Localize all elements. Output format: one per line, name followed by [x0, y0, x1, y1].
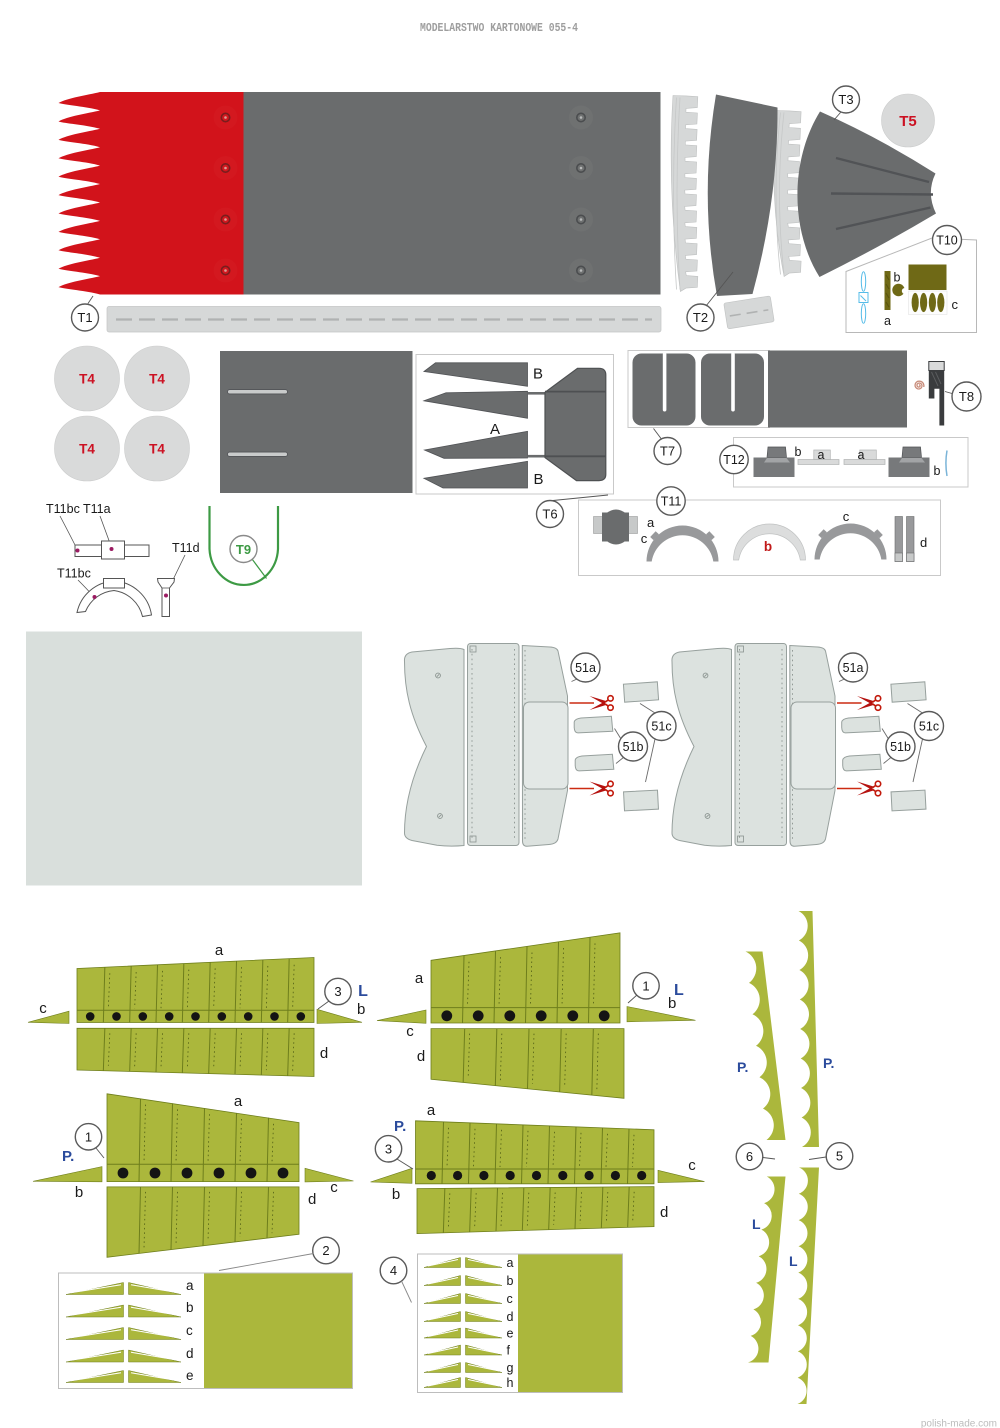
svg-text:b: b: [507, 1274, 514, 1288]
svg-text:B: B: [533, 366, 543, 383]
svg-text:b: b: [764, 539, 772, 554]
svg-text:A: A: [490, 421, 500, 438]
svg-text:c: c: [39, 1000, 47, 1017]
svg-text:L: L: [752, 1216, 761, 1232]
svg-text:a: a: [818, 448, 825, 462]
svg-text:T4: T4: [149, 372, 165, 387]
svg-text:c: c: [952, 297, 959, 312]
svg-text:3: 3: [334, 984, 341, 999]
svg-text:51c: 51c: [919, 720, 939, 734]
svg-text:f: f: [507, 1344, 511, 1358]
svg-text:polish-made.com: polish-made.com: [921, 1419, 997, 1428]
svg-text:a: a: [507, 1256, 514, 1270]
svg-text:T11: T11: [661, 495, 682, 509]
svg-text:3: 3: [385, 1142, 392, 1157]
svg-text:a: a: [186, 1278, 194, 1293]
svg-text:T7: T7: [660, 444, 675, 459]
svg-text:P.: P.: [737, 1059, 748, 1075]
svg-text:1: 1: [642, 979, 649, 994]
svg-text:a: a: [427, 1102, 436, 1119]
svg-text:5: 5: [836, 1149, 843, 1164]
svg-text:51b: 51b: [623, 740, 644, 754]
svg-text:b: b: [795, 445, 802, 459]
svg-text:c: c: [843, 509, 850, 524]
svg-text:d: d: [920, 535, 927, 550]
svg-text:P.: P.: [62, 1148, 74, 1165]
svg-text:T4: T4: [79, 442, 95, 457]
svg-text:MODELARSTWO KARTONOWE 055-4: MODELARSTWO KARTONOWE 055-4: [420, 22, 578, 35]
svg-text:T11bc: T11bc: [57, 567, 91, 581]
svg-text:c: c: [688, 1157, 696, 1174]
svg-text:51a: 51a: [575, 661, 596, 675]
svg-text:e: e: [186, 1368, 194, 1383]
svg-text:d: d: [660, 1204, 668, 1221]
svg-text:B: B: [533, 471, 543, 488]
svg-text:T5: T5: [899, 113, 917, 130]
svg-text:g: g: [507, 1361, 514, 1375]
svg-text:a: a: [858, 448, 865, 462]
svg-text:51c: 51c: [651, 720, 671, 734]
svg-text:51b: 51b: [890, 740, 911, 754]
svg-text:c: c: [641, 531, 648, 546]
svg-text:L: L: [358, 983, 368, 1000]
svg-text:d: d: [417, 1048, 425, 1065]
svg-text:T6: T6: [542, 507, 557, 522]
svg-text:T10: T10: [936, 234, 958, 248]
svg-text:T4: T4: [79, 372, 95, 387]
svg-text:d: d: [320, 1045, 328, 1062]
svg-text:T11d: T11d: [172, 541, 200, 555]
svg-text:T2: T2: [693, 310, 708, 325]
svg-text:a: a: [647, 515, 655, 530]
svg-text:L: L: [674, 982, 684, 999]
svg-text:b: b: [75, 1184, 83, 1201]
svg-text:b: b: [392, 1186, 400, 1203]
svg-text:h: h: [507, 1376, 514, 1390]
svg-text:T4: T4: [149, 442, 165, 457]
svg-text:T11bc: T11bc: [46, 502, 80, 516]
svg-text:a: a: [884, 314, 891, 328]
svg-text:a: a: [215, 942, 224, 959]
svg-text:P.: P.: [394, 1118, 406, 1135]
svg-text:51a: 51a: [843, 661, 864, 675]
svg-text:T1: T1: [77, 310, 92, 325]
svg-text:b: b: [934, 464, 941, 478]
svg-text:1: 1: [85, 1130, 92, 1145]
svg-text:b: b: [357, 1001, 365, 1018]
svg-text:d: d: [308, 1191, 316, 1208]
svg-text:a: a: [415, 970, 424, 987]
svg-text:L: L: [789, 1253, 798, 1269]
svg-text:T8: T8: [959, 389, 974, 404]
svg-text:6: 6: [746, 1149, 753, 1164]
svg-text:c: c: [507, 1292, 513, 1306]
svg-text:c: c: [406, 1023, 414, 1040]
svg-text:c: c: [330, 1179, 338, 1196]
svg-text:d: d: [507, 1310, 514, 1324]
svg-text:P.: P.: [823, 1055, 834, 1071]
svg-text:T3: T3: [838, 92, 853, 107]
svg-text:d: d: [186, 1346, 194, 1361]
svg-text:c: c: [186, 1323, 193, 1338]
svg-text:b: b: [186, 1300, 194, 1315]
svg-text:2: 2: [322, 1243, 329, 1258]
svg-text:a: a: [234, 1093, 243, 1110]
svg-text:4: 4: [390, 1263, 397, 1278]
svg-text:b: b: [894, 271, 901, 285]
svg-text:T9: T9: [236, 542, 251, 557]
svg-text:e: e: [507, 1327, 514, 1341]
svg-text:T11a: T11a: [83, 502, 111, 516]
svg-text:T12: T12: [723, 453, 745, 467]
